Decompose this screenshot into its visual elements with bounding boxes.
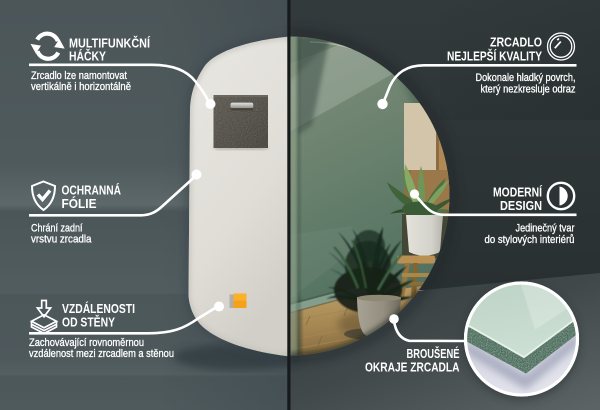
svg-text:Jedinečný tvar: Jedinečný tvar <box>516 222 575 234</box>
svg-text:který nezkresluje odraz: který nezkresluje odraz <box>481 83 576 95</box>
svg-text:NEJLEPŠÍ KVALITY: NEJLEPŠÍ KVALITY <box>447 48 542 63</box>
svg-text:HÁČKY: HÁČKY <box>69 49 106 64</box>
svg-text:OD STĚNY: OD STĚNY <box>62 314 115 329</box>
svg-text:DESIGN: DESIGN <box>500 198 542 213</box>
svg-text:vzdálenost mezi zrcadlem a stě: vzdálenost mezi zrcadlem a stěnou <box>29 348 174 360</box>
svg-text:OKRAJE ZRCADLA: OKRAJE ZRCADLA <box>365 360 460 375</box>
svg-text:Dokonale hladký povrch,: Dokonale hladký povrch, <box>476 72 576 84</box>
svg-text:vertikálně i horizontálně: vertikálně i horizontálně <box>31 81 131 93</box>
svg-text:do stylových interiérů: do stylových interiérů <box>485 234 575 246</box>
svg-text:Zachovávající rovnoměrnou: Zachovávající rovnoměrnou <box>29 337 144 349</box>
svg-text:vrstvu zrcadla: vrstvu zrcadla <box>31 233 92 245</box>
svg-text:BROUŠENÉ: BROUŠENÉ <box>407 346 460 361</box>
svg-text:FÓLIE: FÓLIE <box>62 196 97 211</box>
